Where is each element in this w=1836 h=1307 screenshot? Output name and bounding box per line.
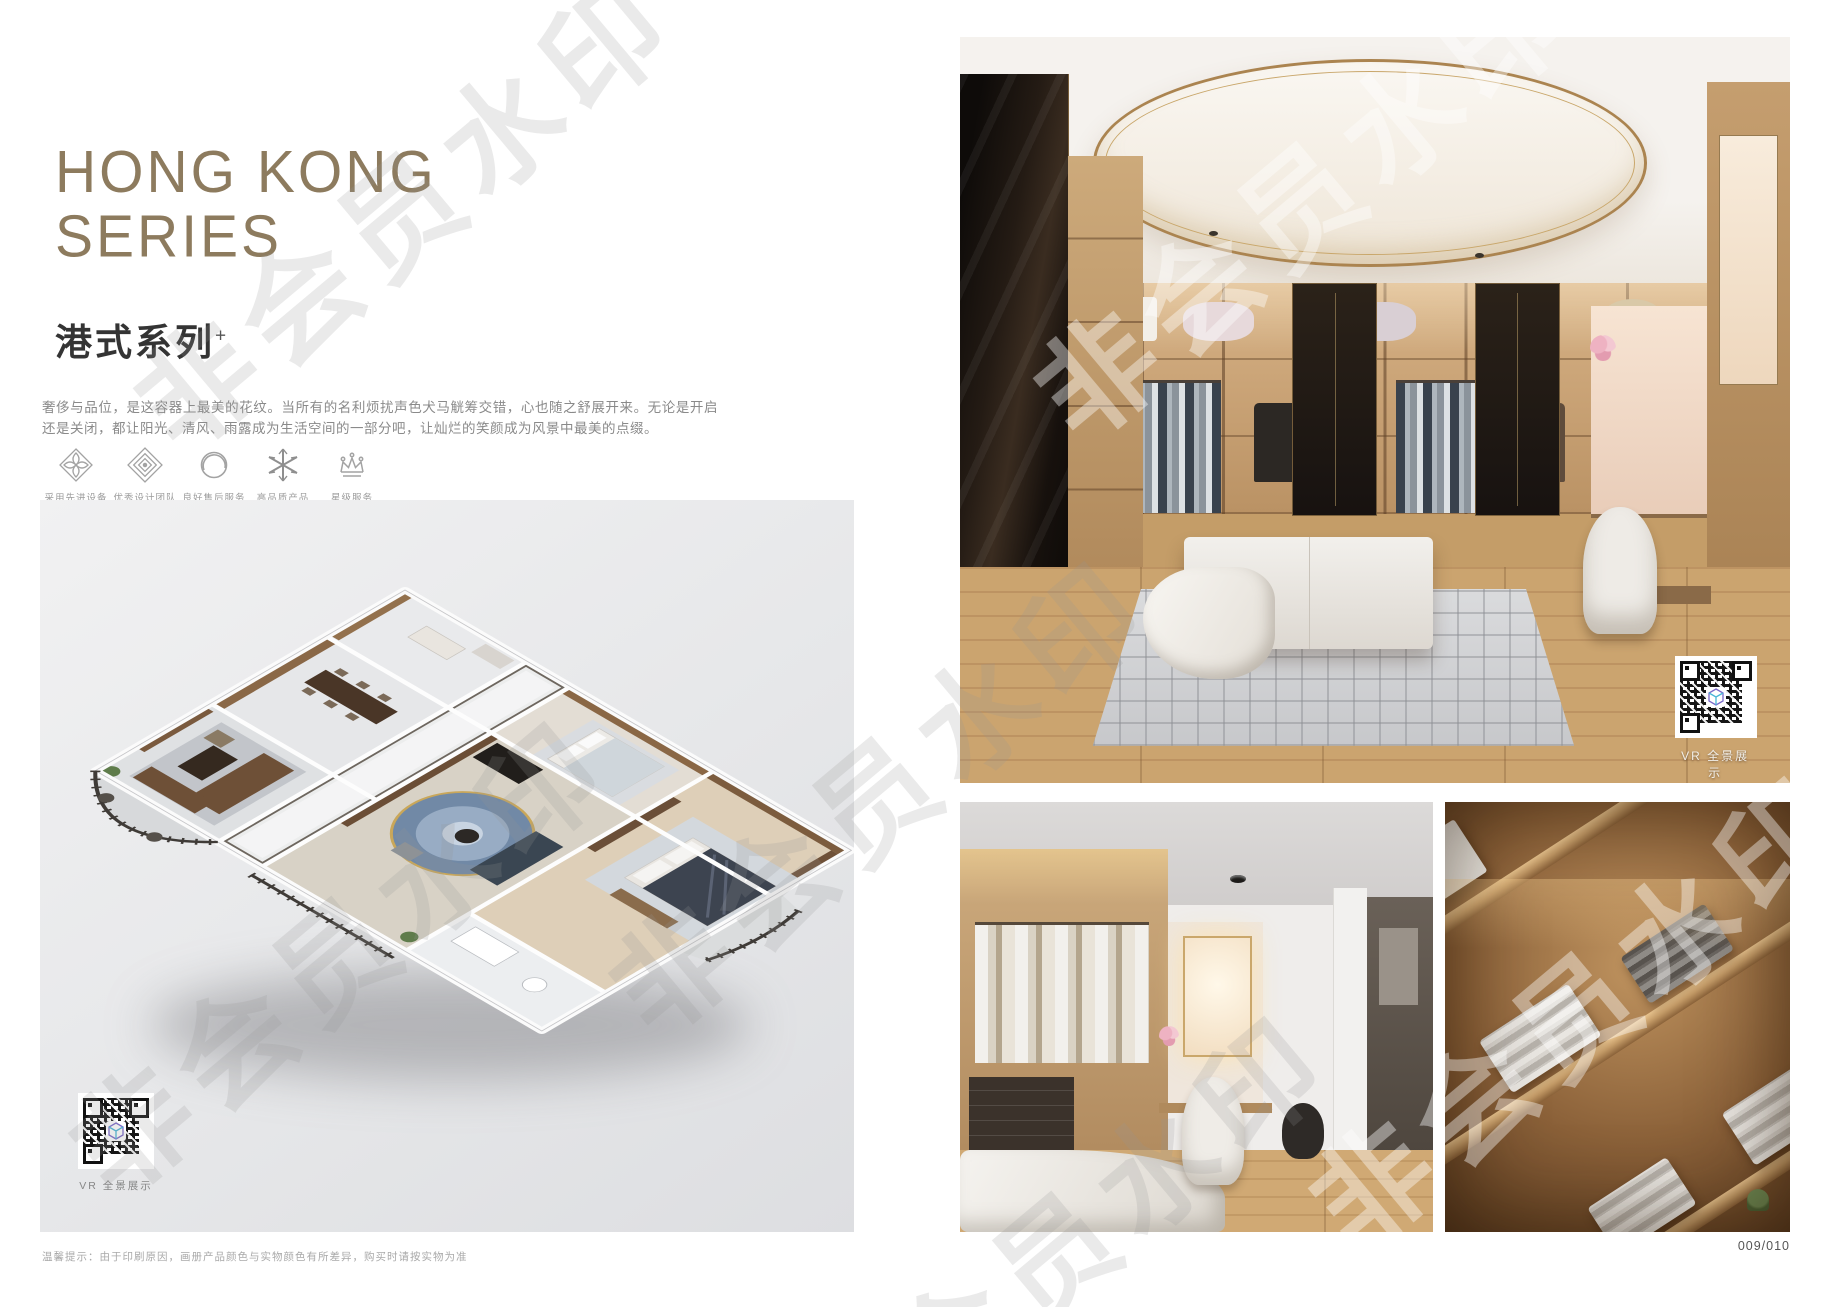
dark-cabinet <box>1475 283 1560 516</box>
hanging-clothes <box>975 922 1150 1063</box>
qr-code <box>78 1093 154 1169</box>
qr-finder <box>83 1144 103 1164</box>
advanced-equipment-icon <box>58 447 94 483</box>
qr-finder <box>1680 713 1700 733</box>
feature-quality-product: 高品质产品 <box>253 447 313 504</box>
dark-cabinet <box>1292 283 1377 516</box>
armchair <box>1583 507 1658 634</box>
series-title-line2: SERIES <box>55 204 437 268</box>
round-stool <box>1282 1103 1325 1159</box>
closet-photo-main: VR 全景展示 <box>960 37 1790 783</box>
flowers <box>1159 1026 1179 1046</box>
dressing-corner-photo <box>960 802 1433 1232</box>
shelf-closeup-photo <box>1445 802 1790 1232</box>
feature-design-team: 优秀设计团队 <box>115 447 175 504</box>
qr-finder <box>1732 661 1752 681</box>
hanging-clothes <box>1396 380 1487 513</box>
spotlight <box>1209 231 1218 236</box>
series-title-cn-text: 港式系列 <box>55 322 215 363</box>
qr-finder <box>129 1098 149 1118</box>
drawer-unit <box>969 1077 1073 1150</box>
series-title-cn: 港式系列+ <box>55 312 229 366</box>
series-title-line1: HONG KONG <box>55 140 437 204</box>
vanity-chair <box>1182 1077 1243 1185</box>
page-number: 009/010 <box>1700 1239 1790 1253</box>
print-disclaimer: 温馨提示：由于印刷原因，画册产品颜色与实物颜色有所差异，购买时请按实物为准 <box>42 1249 468 1264</box>
floorplan-panel: VR 全景展示 <box>40 500 854 1232</box>
flowers <box>1590 335 1616 361</box>
catalog-spread: 非会员水印 非会员水印 非会员水印 非会员水印 非会员水印 非会员水印 HONG… <box>0 0 1836 1307</box>
pillow <box>1183 302 1254 341</box>
vr-cube-icon <box>1706 687 1726 707</box>
qr-finder <box>1680 661 1700 681</box>
feature-star-service: 星级服务 <box>322 447 382 504</box>
vignette <box>1445 802 1790 1232</box>
round-ceiling-light <box>1093 59 1647 266</box>
quality-product-icon <box>265 447 301 483</box>
qr-finder <box>83 1098 103 1118</box>
mirror-cabinet <box>1707 82 1790 619</box>
wall-pillar <box>1333 888 1367 1155</box>
hanging-clothes <box>1131 380 1222 513</box>
vr-cube-icon <box>106 1121 126 1141</box>
vr-label: VR 全景展示 <box>1675 747 1755 781</box>
series-title-en: HONG KONG SERIES <box>55 140 437 269</box>
star-service-icon <box>334 447 370 483</box>
design-team-icon <box>127 447 163 483</box>
vr-qr-right: VR 全景展示 <box>1675 656 1755 781</box>
spotlight <box>1230 875 1246 883</box>
series-description: 奢侈与品位，是这容器上最美的花纹。当所有的名利烦扰声色犬马觥筹交错，心也随之舒展… <box>42 397 718 439</box>
wood-shelf-column <box>1068 156 1143 574</box>
feature-list: 采用先进设备 优秀设计团队 良好售后服务 高品质产品 <box>46 447 382 504</box>
feature-after-sales: 良好售后服务 <box>184 447 244 504</box>
floorplan-graphic <box>40 500 854 1232</box>
after-sales-icon <box>196 447 232 483</box>
feature-advanced-equipment: 采用先进设备 <box>46 447 106 504</box>
vr-qr-left: VR 全景展示 <box>78 1093 154 1193</box>
vr-label: VR 全景展示 <box>78 1178 154 1193</box>
plus-mark: + <box>215 326 229 347</box>
qr-code <box>1675 656 1757 738</box>
doorway <box>1367 897 1433 1155</box>
